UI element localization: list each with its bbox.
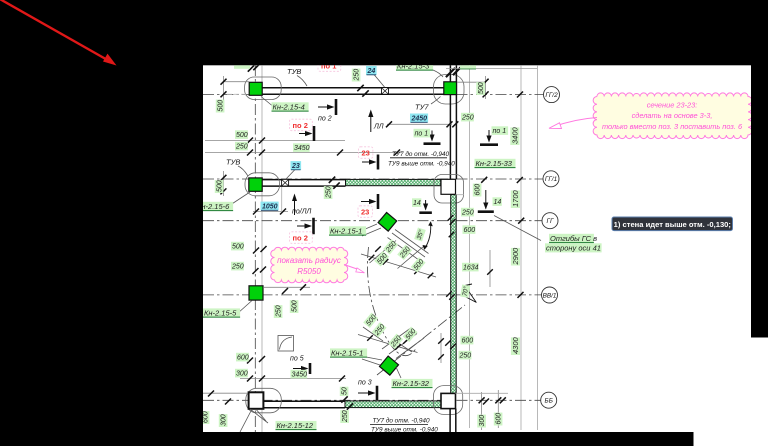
svg-text:ГГ: ГГ [547,218,554,225]
svg-text:R5050: R5050 [297,267,321,276]
svg-text:по 3: по 3 [358,380,372,387]
svg-text:ГГ/2: ГГ/2 [545,92,558,99]
svg-text:ТУВ: ТУВ [226,158,240,167]
svg-text:сторону оси 41: сторону оси 41 [546,244,601,253]
svg-text:3400: 3400 [511,126,520,144]
svg-text:500: 500 [478,82,485,94]
svg-text:показать радиус: показать радиус [277,256,341,265]
svg-text:600: 600 [203,411,210,423]
svg-text:250: 250 [461,210,474,217]
svg-text:сделать на основе 3-3,: сделать на основе 3-3, [632,111,713,120]
svg-text:250: 250 [326,186,333,199]
svg-text:только вместо поз. 3 поставить: только вместо поз. 3 поставить поз. 6 [602,122,743,131]
svg-text:3450: 3450 [294,145,310,152]
svg-text:600: 600 [475,184,482,196]
svg-text:250: 250 [342,410,349,423]
svg-text:ТУВ: ТУВ [287,67,301,76]
svg-text:Кн-2.15-33: Кн-2.15-33 [476,159,513,168]
svg-text:ТУ7 до отм. -0,940: ТУ7 до отм. -0,940 [373,417,430,425]
svg-text:Кн-2.15-4: Кн-2.15-4 [273,103,305,112]
svg-text:250: 250 [235,144,248,151]
svg-text:250: 250 [231,264,244,271]
svg-text:500: 500 [217,180,224,192]
svg-text:Кн-2.15-12: Кн-2.15-12 [277,421,314,430]
svg-text:23: 23 [362,149,370,158]
svg-text:300: 300 [236,371,248,378]
svg-text:по 5: по 5 [290,356,304,363]
svg-text:500: 500 [292,300,299,312]
svg-text:250: 250 [459,353,472,360]
svg-text:ГГ/1: ГГ/1 [545,176,558,183]
svg-text:500: 500 [218,100,225,112]
svg-text:2450: 2450 [411,116,428,123]
svg-text:ВВ/1: ВВ/1 [543,292,557,299]
svg-text:50: 50 [342,387,349,395]
svg-text:24: 24 [367,68,376,75]
svg-text:ЛЛ: ЛЛ [373,124,384,131]
svg-text:500: 500 [232,244,244,251]
svg-text:сечение 23-23:: сечение 23-23: [647,101,698,110]
svg-text:по 2: по 2 [318,116,332,123]
svg-text:по 1: по 1 [415,131,429,138]
svg-text:4300: 4300 [511,336,520,354]
svg-text:ТУ9 выше отм. -0,940: ТУ9 выше отм. -0,940 [388,161,455,168]
svg-text:2900: 2900 [511,247,520,266]
svg-text:14: 14 [413,200,421,207]
svg-text:Кн-2.15-32: Кн-2.15-32 [393,379,430,388]
svg-text:14: 14 [494,199,502,206]
svg-text:1634: 1634 [463,265,479,272]
svg-text:600: 600 [496,413,503,425]
svg-text:ТУ7 до отм. -0,940: ТУ7 до отм. -0,940 [392,150,449,158]
svg-text:23: 23 [291,163,300,170]
svg-text:Кн-2.15-1: Кн-2.15-1 [331,349,363,358]
svg-text:600: 600 [464,227,476,234]
svg-text:250: 250 [354,69,361,82]
svg-text:250: 250 [276,305,283,318]
svg-text:600: 600 [237,355,249,362]
svg-text:600: 600 [462,338,474,345]
svg-text:250: 250 [461,115,474,122]
svg-text:1700: 1700 [511,189,520,207]
svg-text:1) стена идет выше отм. -0,130: 1) стена идет выше отм. -0,130; [614,220,731,229]
svg-text:300: 300 [221,414,228,426]
svg-text:по 2: по 2 [293,234,308,243]
svg-text:по 2: по 2 [293,121,308,130]
svg-text:ББ: ББ [545,398,553,405]
svg-text:по 1: по 1 [493,128,507,135]
svg-text:Кн-2.15-5: Кн-2.15-5 [204,309,237,318]
svg-text:по/ЛЛ: по/ЛЛ [292,209,311,216]
svg-text:300: 300 [479,415,486,427]
svg-text:Отгибы ГС в: Отгибы ГС в [550,234,597,243]
svg-text:Кн-2.15-1: Кн-2.15-1 [330,227,362,236]
svg-text:ТУ7: ТУ7 [415,103,429,112]
svg-text:500: 500 [236,132,248,139]
svg-text:1050: 1050 [262,204,278,211]
svg-text:23: 23 [361,208,369,217]
svg-text:3450: 3450 [292,372,308,379]
